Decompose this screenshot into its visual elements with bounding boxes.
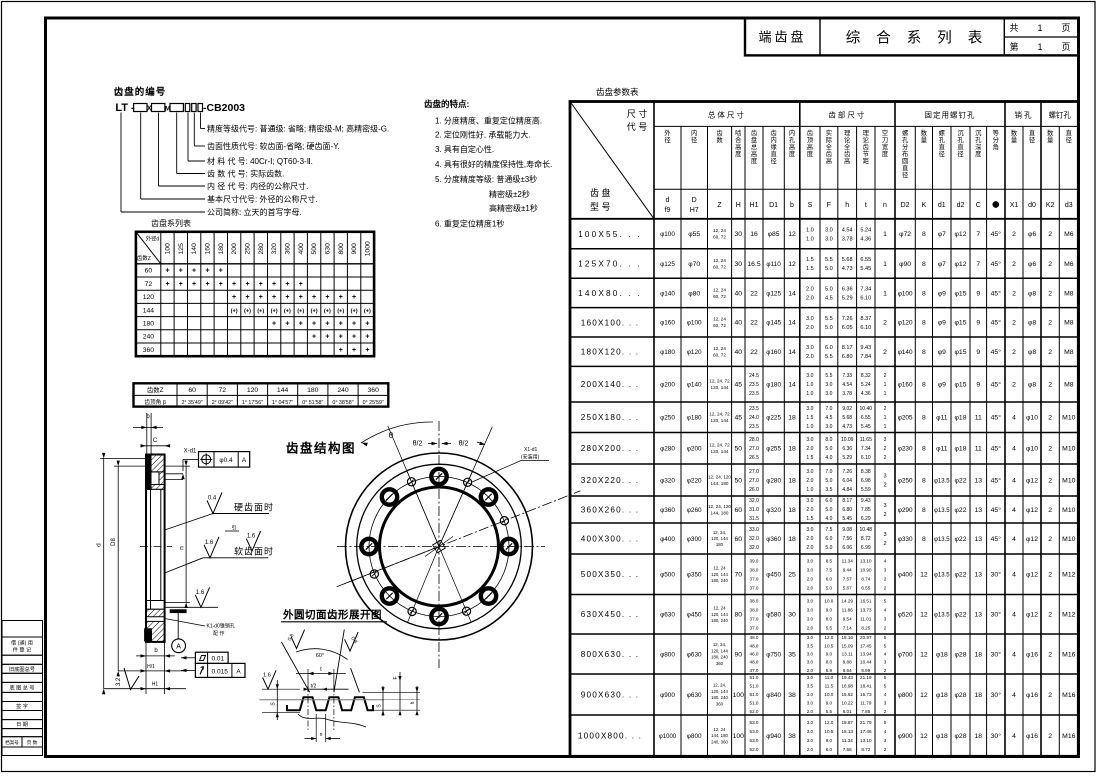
- svg-text:d3: d3: [1065, 202, 1073, 209]
- svg-text:内孔高度: 内孔高度: [789, 128, 796, 158]
- svg-text:H/1: H/1: [147, 664, 155, 670]
- svg-text:φ9: φ9: [938, 349, 946, 356]
- svg-text:(+): (+): [311, 308, 318, 314]
- svg-text:18: 18: [788, 536, 796, 543]
- svg-text:φ12: φ12: [1026, 536, 1038, 543]
- svg-text:160X100. . .: 160X100. . .: [581, 318, 640, 327]
- svg-text:2: 2: [1048, 261, 1052, 268]
- svg-text:页: 页: [1061, 23, 1070, 33]
- svg-text:45°: 45°: [991, 381, 1002, 389]
- svg-text:φ100: φ100: [898, 290, 913, 297]
- svg-text:(+): (+): [324, 308, 331, 314]
- svg-text:-CB2003: -CB2003: [203, 102, 245, 114]
- svg-text:11.657.346.10: 11.657.346.10: [860, 437, 872, 461]
- svg-text:(+): (+): [297, 308, 304, 314]
- svg-text:φ800: φ800: [660, 651, 675, 658]
- svg-text:240: 240: [337, 387, 349, 394]
- svg-text:φ6: φ6: [1028, 231, 1036, 238]
- svg-text:φ330: φ330: [898, 536, 913, 543]
- svg-text:13: 13: [975, 536, 983, 543]
- svg-text:齿盘结构图: 齿盘结构图: [286, 441, 356, 456]
- svg-text:φ630: φ630: [687, 692, 702, 699]
- svg-text:45°: 45°: [991, 289, 1002, 297]
- svg-text:18: 18: [788, 446, 796, 453]
- svg-text:啮合高度: 啮合高度: [735, 128, 742, 158]
- svg-text:180X120. . .: 180X120. . .: [581, 348, 640, 357]
- svg-text:45°: 45°: [991, 230, 1002, 238]
- svg-text:M16: M16: [1062, 733, 1075, 740]
- svg-text:φ520: φ520: [898, 612, 913, 619]
- svg-text:8: 8: [922, 320, 926, 327]
- svg-text:2: 2: [1012, 290, 1016, 297]
- svg-text:θ: θ: [389, 431, 394, 440]
- svg-text:M12: M12: [1062, 572, 1075, 579]
- svg-text:硬齿面时: 硬齿面时: [234, 502, 274, 513]
- svg-text:320X220. . .: 320X220. . .: [581, 476, 640, 485]
- svg-text:60: 60: [188, 387, 196, 394]
- svg-text:+: +: [259, 281, 263, 288]
- svg-text:页 数: 页 数: [27, 739, 38, 746]
- svg-text:250: 250: [245, 243, 252, 255]
- svg-text:13: 13: [975, 572, 983, 579]
- svg-text:500: 500: [311, 243, 318, 255]
- svg-text:3.02.01.0: 3.02.01.0: [806, 469, 813, 493]
- svg-text:12, 2460, 72: 12, 2460, 72: [713, 228, 726, 240]
- svg-text:8: 8: [922, 261, 926, 268]
- svg-text:280: 280: [258, 243, 265, 255]
- svg-text:齿 盘: 齿 盘: [590, 187, 611, 198]
- svg-text:3.02.02.0: 3.02.02.0: [806, 527, 813, 551]
- svg-text:M8: M8: [1064, 290, 1074, 297]
- svg-text:φ100: φ100: [660, 231, 675, 238]
- svg-text:φ840: φ840: [766, 692, 781, 699]
- svg-text:8: 8: [922, 536, 926, 543]
- svg-text:18: 18: [788, 415, 796, 422]
- svg-text:φ290: φ290: [898, 507, 913, 514]
- svg-text:1.6: 1.6: [196, 590, 205, 596]
- svg-text:630X450. . .: 630X450. . .: [581, 610, 640, 619]
- svg-text:2: 2: [1048, 612, 1052, 619]
- svg-text:1: 1: [883, 261, 887, 268]
- svg-text:公司简称: 立天的首写字母.: 公司简称: 立天的首写字母.: [207, 207, 302, 217]
- svg-text:X1-d1: X1-d1: [524, 447, 538, 453]
- svg-text:φ16: φ16: [1026, 733, 1038, 740]
- svg-text:+: +: [192, 268, 196, 275]
- svg-text:38: 38: [788, 733, 796, 740]
- svg-text:90: 90: [735, 651, 743, 658]
- svg-text:8: 8: [922, 446, 926, 453]
- svg-text:14: 14: [788, 290, 796, 297]
- svg-text:φ250: φ250: [898, 477, 913, 484]
- svg-text:+: +: [232, 294, 236, 301]
- svg-text:10.406.555.45: 10.406.555.45: [860, 406, 873, 430]
- svg-text:12: 12: [920, 733, 928, 740]
- svg-text:+: +: [365, 321, 369, 328]
- svg-text:理论齿节距: 理论齿节距: [863, 129, 870, 165]
- svg-text:φ8: φ8: [1028, 382, 1036, 389]
- svg-text:H1: H1: [750, 202, 759, 209]
- svg-text:60: 60: [145, 268, 153, 275]
- svg-text:M8: M8: [1064, 349, 1074, 356]
- svg-text:φ72: φ72: [899, 231, 911, 238]
- svg-text:360: 360: [284, 243, 291, 255]
- svg-text:φ28: φ28: [955, 651, 967, 658]
- svg-text:直径: 直径: [1066, 128, 1073, 144]
- svg-text:φ255: φ255: [766, 446, 781, 453]
- svg-text:φ7: φ7: [938, 261, 946, 268]
- svg-text:125X70. . .: 125X70. . .: [578, 260, 642, 269]
- svg-text:φ580: φ580: [766, 612, 781, 619]
- svg-text:144: 144: [277, 387, 289, 394]
- svg-text:(+): (+): [244, 308, 251, 314]
- svg-text:33.032.032.0: 33.032.032.0: [749, 527, 759, 551]
- svg-text:理论全齿高: 理论全齿高: [844, 129, 851, 165]
- svg-text:螺孔直径: 螺孔直径: [939, 128, 946, 158]
- svg-text:φ125: φ125: [660, 261, 675, 268]
- svg-text:4: 4: [1012, 415, 1016, 422]
- svg-text:+: +: [325, 334, 329, 341]
- svg-text:φ140: φ140: [660, 290, 675, 297]
- svg-text:d: d: [96, 543, 103, 547]
- svg-text:8: 8: [922, 231, 926, 238]
- svg-text:30: 30: [788, 612, 796, 619]
- svg-text:24.523.523.5: 24.523.523.5: [749, 373, 759, 397]
- svg-text:45°: 45°: [991, 506, 1002, 514]
- svg-text:M16: M16: [1062, 692, 1075, 699]
- svg-text:30°: 30°: [991, 732, 1002, 740]
- svg-text:φ350: φ350: [687, 572, 702, 579]
- svg-text:40: 40: [735, 320, 743, 327]
- svg-text:φ55: φ55: [688, 231, 700, 238]
- svg-text:100: 100: [733, 733, 745, 740]
- svg-text:日 期: 日 期: [16, 721, 28, 728]
- svg-text:180: 180: [218, 243, 225, 255]
- svg-text:500X350. . .: 500X350. . .: [581, 570, 640, 579]
- svg-text:12: 12: [920, 692, 928, 699]
- svg-text:16.5: 16.5: [747, 261, 760, 268]
- svg-text:φ9: φ9: [938, 290, 946, 297]
- svg-text:+: +: [339, 334, 343, 341]
- svg-text:8: 8: [922, 349, 926, 356]
- svg-text:1° 17′56″: 1° 17′56″: [242, 400, 263, 406]
- svg-text:0.015: 0.015: [212, 669, 229, 676]
- svg-text:2: 2: [1048, 692, 1052, 699]
- svg-text:φ160: φ160: [660, 320, 675, 327]
- svg-text:φ250: φ250: [660, 415, 675, 422]
- svg-text:120: 120: [143, 294, 155, 301]
- svg-text:h: h: [410, 701, 416, 704]
- svg-text:+: +: [365, 334, 369, 341]
- svg-text:φ18: φ18: [955, 446, 967, 453]
- svg-text:A: A: [176, 644, 181, 651]
- svg-text:3.02.01.5: 3.02.01.5: [806, 437, 813, 461]
- svg-text:φ22: φ22: [955, 507, 967, 514]
- svg-text:400: 400: [298, 243, 305, 255]
- svg-text:φ900: φ900: [660, 692, 675, 699]
- svg-text:页: 页: [1061, 42, 1070, 52]
- svg-text:45: 45: [735, 382, 743, 389]
- svg-text:d1: d1: [938, 202, 946, 209]
- svg-text:12, 24, 120144, 180: 12, 24, 120144, 180: [708, 474, 731, 486]
- svg-text:Z: Z: [717, 202, 722, 209]
- svg-text:4. 具有很好的精度保持性,寿命长.: 4. 具有很好的精度保持性,寿命长.: [435, 159, 552, 169]
- svg-text:φ18: φ18: [936, 692, 948, 699]
- svg-text:d: d: [666, 197, 670, 204]
- svg-text:2: 2: [1048, 446, 1052, 453]
- svg-text:基本尺寸代号: 外径的公称尺寸.: 基本尺寸代号: 外径的公称尺寸.: [207, 194, 318, 204]
- svg-text:22: 22: [750, 290, 758, 297]
- svg-text:档案号: 档案号: [5, 739, 19, 746]
- svg-text:尺 寸: 尺 寸: [627, 108, 648, 119]
- svg-text:+: +: [272, 294, 276, 301]
- svg-text:φ28: φ28: [955, 733, 967, 740]
- svg-text:φ15: φ15: [955, 290, 967, 297]
- svg-text:φ200: φ200: [687, 446, 702, 453]
- svg-text:8.05.04.0: 8.05.04.0: [825, 437, 832, 461]
- svg-text:φ750: φ750: [766, 651, 781, 658]
- svg-text:φ100: φ100: [687, 320, 702, 327]
- svg-text:8: 8: [922, 477, 926, 484]
- svg-text:+: +: [325, 321, 329, 328]
- svg-text:211: 211: [884, 373, 887, 397]
- svg-text:旧底图总号: 旧底图总号: [9, 665, 35, 673]
- svg-text:φ7: φ7: [938, 231, 946, 238]
- svg-text:+: +: [245, 281, 249, 288]
- svg-text:+: +: [165, 281, 169, 288]
- svg-text:9: 9: [976, 320, 980, 327]
- svg-text:144: 144: [143, 307, 155, 314]
- svg-text:1000: 1000: [364, 241, 371, 256]
- svg-text:140: 140: [191, 243, 198, 255]
- svg-text:+: +: [339, 294, 343, 301]
- svg-text:(+): (+): [284, 308, 291, 314]
- svg-text:齿盘的编号: 齿盘的编号: [114, 86, 167, 98]
- svg-text:φ12: φ12: [1026, 507, 1038, 514]
- svg-text:+: +: [205, 268, 209, 275]
- svg-text:7: 7: [976, 261, 980, 268]
- svg-text:φ18: φ18: [955, 415, 967, 422]
- svg-text:φ205: φ205: [898, 415, 913, 422]
- svg-text:0° 38′58″: 0° 38′58″: [332, 400, 353, 406]
- svg-text:外径d: 外径d: [146, 235, 160, 243]
- svg-text:H: H: [736, 202, 741, 209]
- svg-text:9: 9: [976, 349, 980, 356]
- svg-text:72: 72: [219, 387, 227, 394]
- svg-text:φ90: φ90: [899, 261, 911, 268]
- svg-text:2: 2: [1048, 536, 1052, 543]
- svg-text:内 径 代 号: 内径的公称尺寸.: 内 径 代 号: 内径的公称尺寸.: [207, 181, 308, 191]
- svg-text:φ18: φ18: [936, 733, 948, 740]
- svg-text:φ500: φ500: [660, 572, 675, 579]
- svg-text:M8: M8: [1064, 320, 1074, 327]
- svg-text:+: +: [299, 281, 303, 288]
- svg-text:2: 2: [1048, 477, 1052, 484]
- svg-text:空刀宽度: 空刀宽度: [882, 128, 889, 158]
- svg-text:+: +: [299, 321, 303, 328]
- svg-text:φ300: φ300: [687, 536, 702, 543]
- svg-text:F: F: [827, 202, 831, 209]
- svg-text:0° 51′58″: 0° 51′58″: [302, 400, 323, 406]
- svg-text:S: S: [808, 202, 813, 209]
- svg-text:φ280: φ280: [660, 446, 675, 453]
- svg-text:12: 12: [920, 612, 928, 619]
- svg-text:X-d1: X-d1: [184, 449, 197, 455]
- svg-text:数量: 数量: [1047, 128, 1054, 144]
- svg-text:齿盘系列表: 齿盘系列表: [151, 218, 191, 228]
- svg-text:0° 25′59″: 0° 25′59″: [363, 400, 384, 406]
- svg-text:400X300. . .: 400X300. . .: [581, 535, 640, 544]
- svg-text:9.087.566.06: 9.087.566.06: [842, 527, 852, 551]
- svg-text:φ15: φ15: [955, 349, 967, 356]
- svg-text:φ220: φ220: [687, 477, 702, 484]
- svg-text:引: 引: [231, 525, 236, 532]
- svg-text:16: 16: [750, 231, 758, 238]
- svg-text:+: +: [232, 281, 236, 288]
- svg-text:2: 2: [1048, 651, 1052, 658]
- svg-text:2: 2: [1048, 415, 1052, 422]
- svg-text:φ360: φ360: [660, 507, 675, 514]
- svg-text:2: 2: [1012, 320, 1016, 327]
- svg-text:+: +: [285, 321, 289, 328]
- svg-text:160: 160: [205, 243, 212, 255]
- svg-text:φ18: φ18: [936, 651, 948, 658]
- svg-text:80: 80: [735, 612, 743, 619]
- svg-text:11: 11: [975, 446, 982, 453]
- svg-text:2: 2: [1048, 320, 1052, 327]
- svg-text:2: 2: [1012, 382, 1016, 389]
- svg-text:4: 4: [1012, 477, 1016, 484]
- svg-text:φ12: φ12: [1026, 572, 1038, 579]
- svg-text:(+): (+): [351, 308, 358, 314]
- svg-text:30: 30: [735, 261, 743, 268]
- svg-text:8: 8: [922, 507, 926, 514]
- svg-text:+: +: [312, 321, 316, 328]
- svg-text:45: 45: [735, 415, 743, 422]
- svg-text:+: +: [259, 294, 263, 301]
- svg-text:M10: M10: [1062, 415, 1075, 422]
- svg-text:+: +: [285, 281, 289, 288]
- svg-text:精度等级代号: 普通级: 省略; 精密级-M; 高精密级-G: 精度等级代号: 普通级: 省略; 精密级-M; 高精密级-G.: [207, 123, 389, 133]
- svg-text:3.2: 3.2: [116, 677, 122, 686]
- svg-text:8: 8: [922, 415, 926, 422]
- svg-text:3.02.01.5: 3.02.01.5: [806, 498, 813, 522]
- svg-text:1: 1: [1037, 42, 1042, 52]
- svg-text:180: 180: [143, 321, 155, 328]
- svg-text:+: +: [352, 294, 356, 301]
- svg-text:d2: d2: [957, 202, 965, 209]
- svg-text:7.334.543.78: 7.334.543.78: [842, 373, 852, 397]
- svg-text:φ630: φ630: [660, 612, 675, 619]
- svg-text:32.031.031.5: 32.031.031.5: [749, 498, 759, 522]
- svg-text:φ180: φ180: [660, 349, 675, 356]
- svg-text:φ180: φ180: [766, 382, 781, 389]
- svg-text:件 登 记: 件 登 记: [13, 646, 31, 654]
- svg-text:13: 13: [975, 612, 983, 619]
- svg-text:2: 2: [1048, 231, 1052, 238]
- svg-text:322: 322: [884, 437, 887, 461]
- svg-text:φ22: φ22: [955, 477, 967, 484]
- svg-text:直径: 直径: [1029, 128, 1036, 144]
- svg-text:n: n: [320, 732, 323, 738]
- svg-text:φ200: φ200: [660, 382, 675, 389]
- svg-text:7.05.03.5: 7.05.03.5: [825, 469, 832, 493]
- svg-text:360: 360: [143, 347, 155, 354]
- svg-text:数量: 数量: [921, 128, 928, 144]
- svg-text:型 号: 型 号: [590, 202, 611, 212]
- svg-text:φ12: φ12: [1026, 477, 1038, 484]
- svg-text:3. 具有自定心性.: 3. 具有自定心性.: [435, 144, 494, 154]
- svg-text:φ360: φ360: [766, 536, 781, 543]
- svg-text:7: 7: [976, 231, 980, 238]
- svg-text:φ6: φ6: [1028, 261, 1036, 268]
- svg-text:5. 分度精度等级: 普通级±3秒: 5. 分度精度等级: 普通级±3秒: [435, 174, 537, 184]
- svg-text:(+): (+): [364, 308, 371, 314]
- svg-text:φ13.5: φ13.5: [934, 478, 950, 484]
- svg-text:齿顶角 β: 齿顶角 β: [144, 398, 166, 406]
- svg-text:30°: 30°: [991, 571, 1002, 579]
- svg-text:18: 18: [788, 477, 796, 484]
- svg-text:12: 12: [788, 231, 796, 238]
- svg-text:12, 24, 72120, 144: 12, 24, 72120, 144: [709, 443, 730, 455]
- svg-text:0.4: 0.4: [208, 496, 217, 502]
- svg-text:φ320: φ320: [660, 477, 675, 484]
- svg-text:φ0.4: φ0.4: [219, 457, 233, 464]
- svg-text:200X140. . .: 200X140. . .: [581, 380, 640, 389]
- svg-text:齿 数 代 号: 实际齿数.: 齿 数 代 号: 实际齿数.: [207, 168, 284, 178]
- svg-text:固定用螺钉孔: 固定用螺钉孔: [925, 110, 976, 120]
- svg-text:1.6: 1.6: [247, 534, 256, 540]
- svg-text:+: +: [179, 281, 183, 288]
- svg-text:2. 定位刚性好, 承载能力大.: 2. 定位刚性好, 承载能力大.: [435, 130, 531, 140]
- svg-text:9: 9: [976, 382, 980, 389]
- svg-text:φ8: φ8: [1028, 349, 1036, 356]
- svg-text:50: 50: [735, 477, 743, 484]
- svg-text:D2: D2: [901, 202, 910, 209]
- svg-text:9.025.684.73: 9.025.684.73: [842, 406, 852, 430]
- svg-text:D1: D1: [769, 202, 778, 209]
- svg-text:1.6: 1.6: [263, 673, 271, 679]
- svg-text:配 作: 配 作: [213, 630, 224, 637]
- svg-text:M10: M10: [1062, 507, 1075, 514]
- svg-text:18: 18: [788, 507, 796, 514]
- svg-text:1° 04′57″: 1° 04′57″: [272, 400, 293, 406]
- svg-text:齿面性质代号: 软齿面-省略; 硬齿面-Y.: 齿面性质代号: 软齿面-省略; 硬齿面-Y.: [207, 141, 340, 151]
- svg-text:250X180. . .: 250X180. . .: [581, 413, 640, 422]
- svg-text:M10: M10: [1062, 477, 1075, 484]
- svg-text:2: 2: [1012, 261, 1016, 268]
- svg-text:+: +: [285, 294, 289, 301]
- svg-text:+: +: [339, 321, 343, 328]
- svg-text:1: 1: [883, 290, 887, 297]
- svg-text:精密级±2秒: 精密级±2秒: [489, 189, 530, 199]
- svg-text:φ13.5: φ13.5: [934, 613, 950, 619]
- svg-text:K2: K2: [1046, 202, 1055, 209]
- svg-text:900X630. . .: 900X630. . .: [581, 691, 640, 700]
- svg-text:φ160: φ160: [898, 382, 913, 389]
- svg-text:X1: X1: [1010, 202, 1019, 209]
- svg-text:销 孔: 销 孔: [1014, 110, 1032, 120]
- svg-text:φ12: φ12: [1026, 612, 1038, 619]
- svg-text:10.096.365.29: 10.096.365.29: [841, 437, 854, 461]
- svg-text:+: +: [219, 268, 223, 275]
- svg-text:2° 09′42″: 2° 09′42″: [212, 400, 233, 406]
- svg-text:40: 40: [735, 349, 743, 356]
- svg-text:φ110: φ110: [766, 261, 781, 268]
- svg-text:φ13.5: φ13.5: [934, 573, 950, 579]
- svg-text:φ160: φ160: [766, 349, 781, 356]
- svg-text:13: 13: [975, 507, 983, 514]
- svg-text:φ180: φ180: [687, 415, 702, 422]
